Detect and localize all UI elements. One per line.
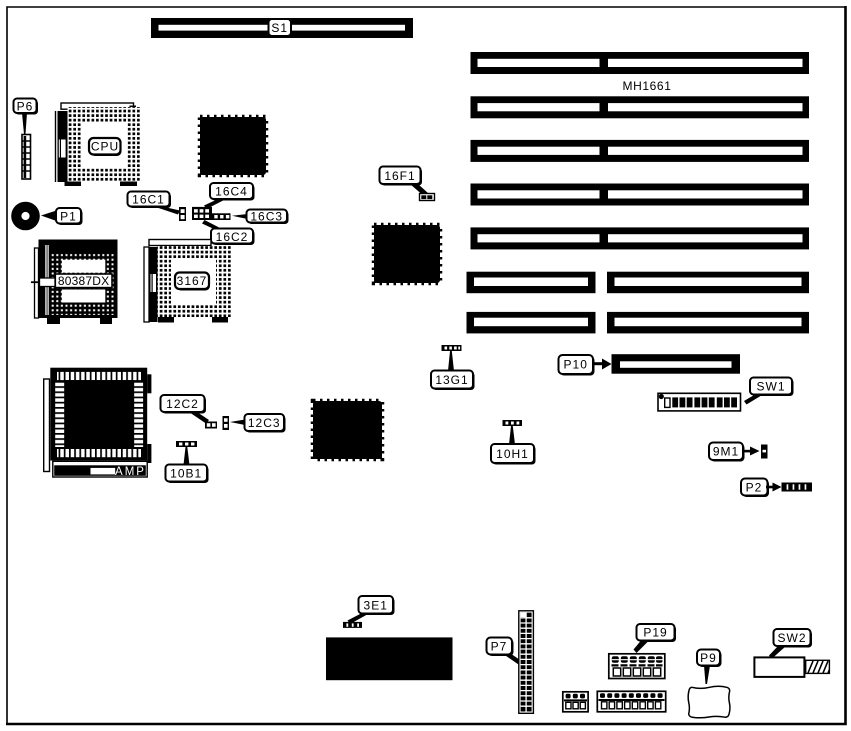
svg-text:12C3: 12C3 xyxy=(248,416,281,430)
svg-text:80387DX: 80387DX xyxy=(58,274,109,288)
svg-text:10H1: 10H1 xyxy=(496,447,529,461)
svg-text:16C2: 16C2 xyxy=(216,230,249,244)
svg-text:P19: P19 xyxy=(643,626,667,640)
svg-text:S1: S1 xyxy=(271,21,288,35)
svg-text:13G1: 13G1 xyxy=(435,373,468,387)
svg-text:3E1: 3E1 xyxy=(364,598,388,612)
svg-text:9M1: 9M1 xyxy=(713,445,739,459)
svg-text:AMP: AMP xyxy=(115,466,146,478)
svg-text:P6: P6 xyxy=(17,99,34,113)
svg-text:P7: P7 xyxy=(491,639,508,653)
svg-text:SW1: SW1 xyxy=(756,379,785,393)
svg-text:SW2: SW2 xyxy=(777,631,806,645)
svg-text:16C1: 16C1 xyxy=(132,193,165,207)
svg-text:P9: P9 xyxy=(700,651,717,665)
svg-text:12C2: 12C2 xyxy=(166,397,199,411)
svg-text:10B1: 10B1 xyxy=(170,466,202,480)
svg-text:CPU: CPU xyxy=(91,140,119,154)
svg-text:P1: P1 xyxy=(60,209,77,223)
svg-text:16C4: 16C4 xyxy=(215,185,248,199)
svg-text:16F1: 16F1 xyxy=(384,169,415,183)
svg-text:MH1661: MH1661 xyxy=(623,79,672,93)
svg-text:P2: P2 xyxy=(746,480,763,494)
svg-text:P10: P10 xyxy=(564,358,588,372)
svg-text:3167: 3167 xyxy=(177,274,208,288)
svg-text:16C3: 16C3 xyxy=(250,209,283,223)
